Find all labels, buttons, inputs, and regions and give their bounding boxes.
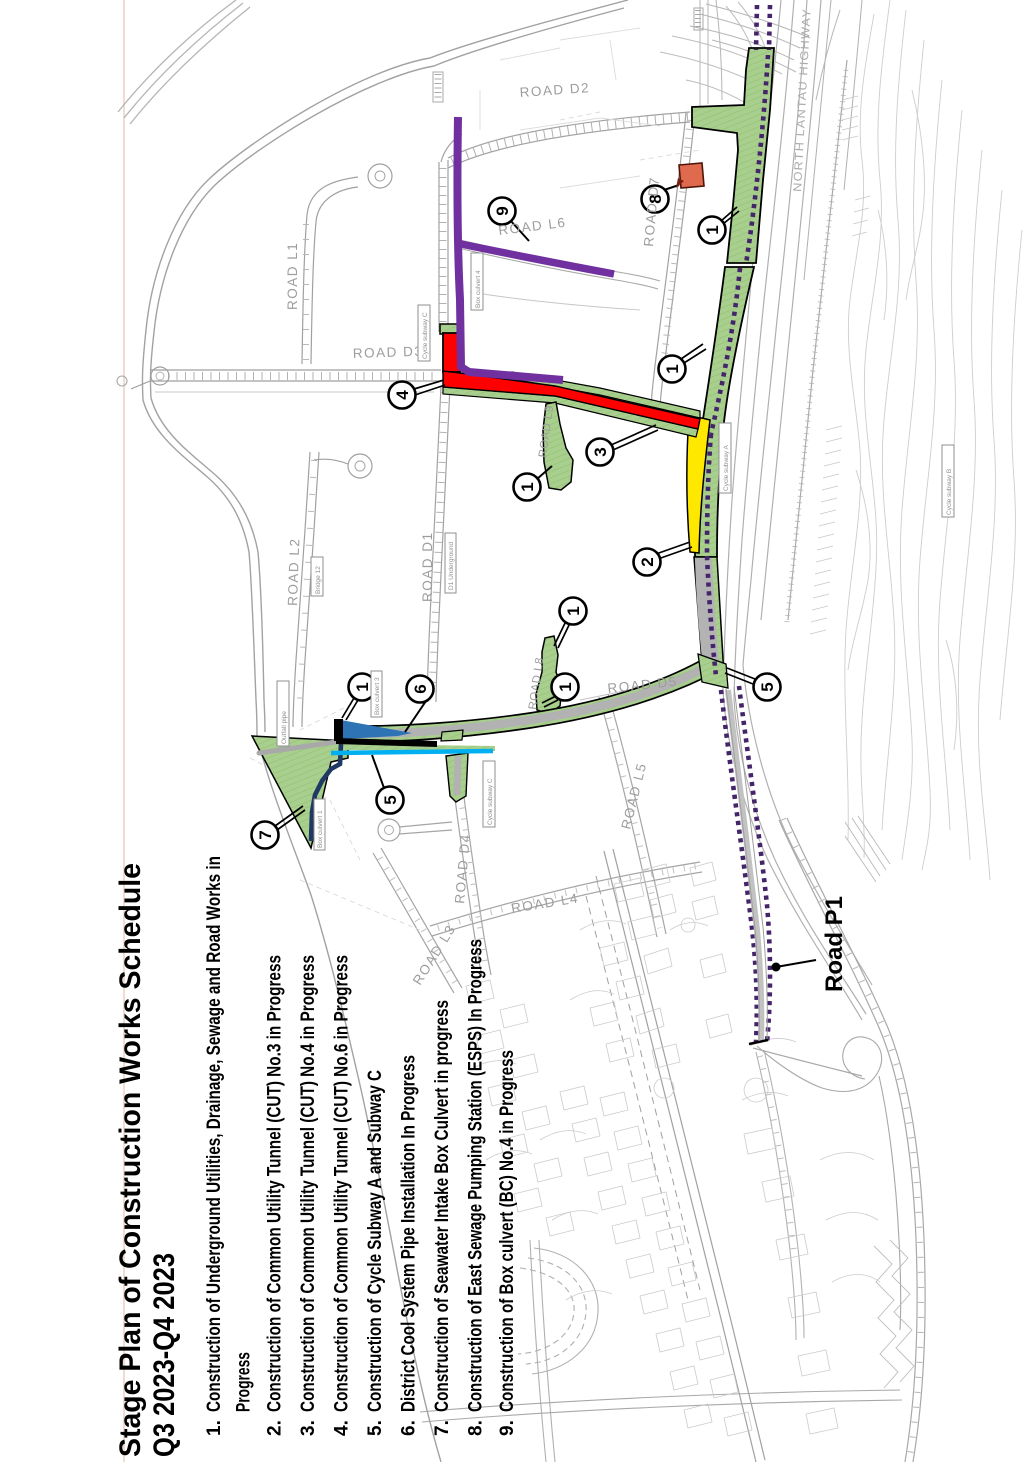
svg-text:ROAD L1: ROAD L1 [285, 242, 300, 310]
svg-text:Box culvert 1: Box culvert 1 [317, 810, 324, 848]
svg-text:Q3 2023-Q4 2023: Q3 2023-Q4 2023 [148, 1253, 181, 1457]
svg-text:Cycle subway C: Cycle subway C [487, 778, 494, 825]
svg-text:7.: 7. [432, 1420, 453, 1436]
svg-text:9: 9 [493, 206, 512, 215]
svg-text:District Cool System Pipe Inst: District Cool System Pipe Installation I… [399, 1055, 420, 1412]
svg-text:6.: 6. [399, 1420, 420, 1436]
svg-text:3: 3 [591, 447, 610, 456]
svg-text:7: 7 [256, 830, 275, 839]
svg-text:9.: 9. [497, 1420, 518, 1436]
svg-text:Construction of East Sewage Pu: Construction of East Sewage Pumping Stat… [466, 939, 487, 1412]
svg-text:1: 1 [353, 682, 372, 691]
svg-text:1: 1 [663, 364, 682, 373]
svg-text:Cycle subway B: Cycle subway B [946, 469, 953, 515]
svg-text:1: 1 [564, 606, 583, 615]
svg-text:Progress: Progress [234, 1352, 255, 1412]
svg-text:4.: 4. [332, 1420, 353, 1436]
svg-text:Construction of Seawater Intak: Construction of Seawater Intake Box Culv… [432, 1000, 453, 1412]
svg-text:Construction of Underground Ut: Construction of Underground Utilities, D… [204, 856, 225, 1412]
svg-text:D1 Underground: D1 Underground [448, 542, 455, 590]
svg-text:ROAD D1: ROAD D1 [420, 531, 435, 602]
svg-text:1: 1 [556, 682, 575, 691]
svg-text:Stage Plan of Construction Wor: Stage Plan of Construction Works Schedul… [114, 863, 147, 1457]
svg-text:Construction of Box culvert (B: Construction of Box culvert (BC) No.4 in… [497, 1050, 518, 1412]
svg-text:ROAD L2: ROAD L2 [285, 537, 302, 606]
svg-text:Construction of Common Utility: Construction of Common Utility Tunnel (C… [298, 955, 319, 1412]
svg-text:1: 1 [518, 482, 537, 491]
svg-text:Construction of Common Utility: Construction of Common Utility Tunnel (C… [332, 955, 353, 1412]
svg-text:Cycle subway A: Cycle subway A [723, 444, 730, 491]
svg-text:Box culvert 4: Box culvert 4 [475, 270, 482, 308]
svg-text:ROAD D3: ROAD D3 [353, 344, 424, 361]
svg-text:Outfall pipe: Outfall pipe [281, 711, 288, 744]
svg-text:Construction of Common Utility: Construction of Common Utility Tunnel (C… [265, 955, 286, 1412]
svg-text:1.: 1. [204, 1420, 225, 1436]
svg-text:4: 4 [393, 390, 412, 400]
svg-text:Bridge 12: Bridge 12 [315, 566, 322, 594]
svg-text:8.: 8. [466, 1420, 487, 1436]
svg-text:Road P1: Road P1 [821, 896, 848, 992]
svg-text:5.: 5. [365, 1420, 386, 1436]
svg-text:2: 2 [638, 557, 657, 566]
svg-text:Cycle subway C: Cycle subway C [422, 312, 429, 359]
svg-text:1: 1 [703, 225, 722, 234]
svg-text:5: 5 [381, 795, 400, 804]
svg-text:5: 5 [758, 682, 777, 691]
svg-text:6: 6 [411, 684, 430, 693]
svg-text:Box culvert 3: Box culvert 3 [374, 677, 381, 715]
svg-text:2.: 2. [265, 1420, 286, 1436]
svg-text:Construction of Cycle Subway A: Construction of Cycle Subway A and Subwa… [365, 1070, 386, 1412]
svg-text:3.: 3. [298, 1420, 319, 1436]
